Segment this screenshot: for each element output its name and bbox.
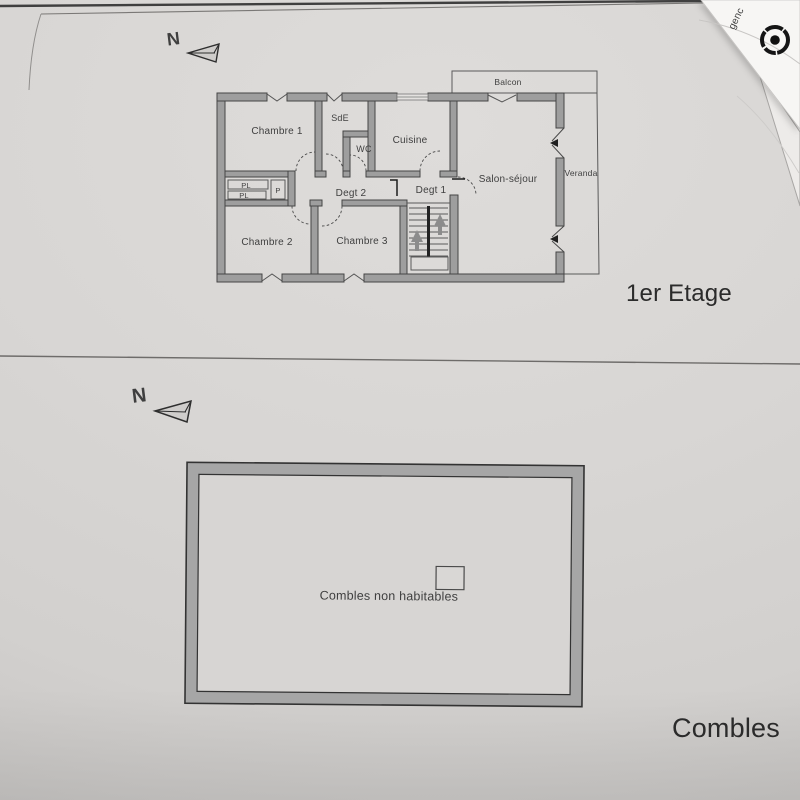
document-photo-svg: N <box>0 0 800 800</box>
room-label-chambre1: Chambre 1 <box>251 126 303 137</box>
closet-label-pl-bottom: PL <box>239 191 249 200</box>
balcon-outline <box>452 71 597 93</box>
section-divider-line <box>0 356 800 364</box>
veranda-outline <box>564 93 599 274</box>
room-label-chambre2: Chambre 2 <box>241 237 293 248</box>
room-label-degt1: Degt 1 <box>416 185 447 196</box>
photographed-document: N <box>0 0 800 800</box>
north-letter: N <box>166 28 182 49</box>
north-arrow-icon-2: N <box>131 384 191 422</box>
page-border-lines <box>0 1 704 90</box>
window-marks <box>262 94 516 281</box>
exterior-walls <box>217 93 564 282</box>
room-label-wc: WC <box>356 144 372 154</box>
room-label-balcon: Balcon <box>494 77 521 87</box>
room-label-degt2: Degt 2 <box>336 188 367 199</box>
floor1-title: 1er Etage <box>626 280 732 307</box>
floor-plan-1er-etage: Chambre 1 SdE WC Cuisine Balcon Salon-sé… <box>217 71 599 282</box>
closet-label-p: P <box>275 186 280 195</box>
room-label-cuisine: Cuisine <box>393 135 428 146</box>
floor2-title: Combles <box>672 713 780 743</box>
room-label-attic: Combles non habitables <box>320 588 459 603</box>
closet-label-pl-top: PL <box>241 181 251 190</box>
chimney-box <box>436 566 464 589</box>
room-label-chambre3: Chambre 3 <box>336 236 388 247</box>
north-arrow-icon: N <box>166 28 219 62</box>
staircase <box>407 203 450 270</box>
room-label-salon: Salon-séjour <box>479 174 538 185</box>
floor-plan-combles: Combles non habitables <box>185 462 584 706</box>
attic-interior <box>197 474 572 694</box>
room-label-sde: SdE <box>331 113 349 123</box>
room-label-veranda: Veranda <box>564 168 597 178</box>
north-letter-2: N <box>131 384 148 408</box>
overlay-paper: genc <box>699 0 800 206</box>
